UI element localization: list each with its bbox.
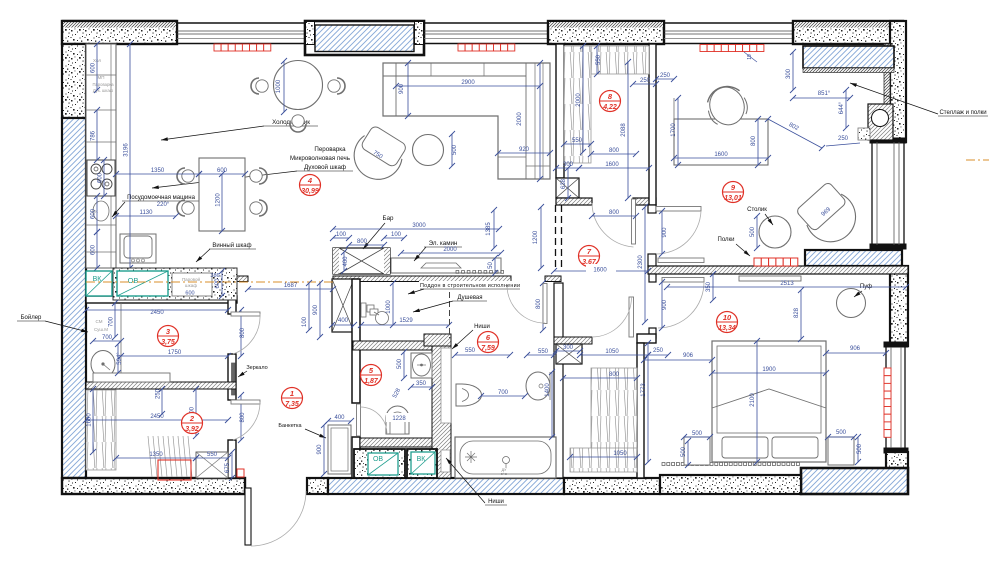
svg-text:1200: 1200: [216, 193, 222, 207]
svg-text:3196: 3196: [124, 143, 130, 157]
svg-text:500: 500: [452, 144, 458, 155]
svg-text:Посудомоечная машина: Посудомоечная машина: [127, 195, 196, 201]
svg-text:1130: 1130: [140, 210, 154, 216]
svg-text:851°: 851°: [818, 91, 831, 97]
svg-text:900: 900: [399, 83, 405, 94]
svg-text:600: 600: [98, 172, 104, 183]
svg-text:250: 250: [660, 73, 671, 79]
svg-text:1600: 1600: [87, 413, 93, 427]
svg-text:600: 600: [91, 62, 97, 73]
svg-text:1400: 1400: [545, 383, 551, 397]
svg-text:Пароварка: Пароварка: [92, 82, 114, 87]
svg-text:500: 500: [750, 226, 756, 237]
svg-text:7,59: 7,59: [481, 345, 495, 352]
svg-text:500: 500: [397, 358, 403, 369]
svg-text:920: 920: [519, 147, 530, 153]
svg-text:1600: 1600: [714, 152, 728, 158]
svg-text:50: 50: [488, 262, 494, 269]
svg-text:350: 350: [416, 381, 427, 387]
svg-text:1050: 1050: [605, 349, 619, 355]
svg-text:1529: 1529: [399, 318, 413, 324]
svg-text:100: 100: [336, 232, 347, 238]
svg-text:1000: 1000: [276, 79, 282, 93]
svg-text:906: 906: [683, 353, 694, 359]
svg-text:1050: 1050: [613, 451, 627, 457]
svg-text:3,92: 3,92: [185, 426, 199, 433]
svg-text:Пероварка: Пероварка: [314, 146, 346, 153]
svg-text:2450: 2450: [150, 414, 164, 420]
svg-text:Суш.М: Суш.М: [94, 327, 108, 332]
svg-text:800: 800: [751, 135, 757, 146]
svg-text:675: 675: [225, 462, 231, 473]
svg-text:1228: 1228: [392, 416, 406, 422]
svg-text:10: 10: [723, 313, 732, 322]
svg-text:1600: 1600: [605, 162, 619, 168]
svg-text:ОВ: ОВ: [128, 276, 139, 285]
svg-text:2300: 2300: [638, 255, 644, 269]
svg-text:1700: 1700: [671, 123, 677, 137]
svg-text:500: 500: [857, 443, 863, 454]
svg-text:800: 800: [240, 327, 246, 338]
svg-text:ОВ: ОВ: [373, 456, 383, 463]
svg-text:786: 786: [91, 130, 97, 141]
svg-text:300: 300: [786, 68, 792, 79]
svg-text:13,34: 13,34: [718, 325, 736, 332]
svg-text:700: 700: [102, 335, 113, 341]
svg-text:Полки: Полки: [718, 237, 735, 243]
svg-text:638: 638: [561, 178, 567, 189]
svg-text:13,01: 13,01: [724, 195, 742, 202]
svg-text:шкаф: шкаф: [185, 283, 197, 288]
svg-text:Паровой: Паровой: [182, 276, 201, 282]
svg-text:2900: 2900: [461, 80, 475, 86]
svg-text:Душевая: Душевая: [457, 295, 482, 301]
svg-text:30,99: 30,99: [301, 188, 319, 195]
svg-text:700: 700: [498, 390, 509, 396]
svg-text:900: 900: [662, 299, 668, 310]
svg-text:900: 900: [662, 227, 668, 238]
svg-text:Зеркало: Зеркало: [246, 365, 267, 371]
svg-text:600: 600: [185, 291, 194, 297]
svg-text:220°: 220°: [157, 202, 170, 208]
svg-text:2000: 2000: [517, 112, 523, 126]
svg-text:400: 400: [334, 415, 345, 421]
svg-text:2450: 2450: [150, 310, 164, 316]
svg-text:4: 4: [307, 176, 313, 185]
svg-text:800: 800: [609, 372, 620, 378]
svg-text:1350: 1350: [149, 452, 163, 458]
svg-text:906: 906: [850, 346, 861, 352]
svg-text:500: 500: [692, 431, 703, 437]
svg-text:1687: 1687: [284, 283, 298, 289]
svg-text:1900: 1900: [762, 367, 776, 373]
svg-text:600: 600: [91, 244, 97, 255]
svg-text:Поддон в строительном исполнен: Поддон в строительном исполнении: [420, 283, 520, 289]
svg-text:800: 800: [609, 148, 620, 154]
svg-text:Микроволновая печь: Микроволновая печь: [290, 155, 350, 162]
svg-text:250: 250: [653, 348, 664, 354]
svg-text:в+ж: в+ж: [501, 472, 508, 476]
svg-text:4,22: 4,22: [602, 104, 617, 111]
svg-text:2100: 2100: [750, 393, 756, 407]
svg-text:800: 800: [609, 210, 620, 216]
svg-text:Ниши: Ниши: [474, 324, 490, 330]
svg-text:800: 800: [240, 412, 246, 423]
svg-text:300: 300: [563, 345, 574, 351]
svg-text:500: 500: [836, 430, 847, 436]
svg-text:800: 800: [357, 239, 368, 245]
svg-text:Эл. камин: Эл. камин: [429, 240, 458, 247]
svg-text:Бойлер: Бойлер: [21, 314, 42, 321]
svg-text:Банкетка: Банкетка: [278, 423, 302, 429]
svg-text:1385: 1385: [486, 222, 492, 236]
svg-text:828: 828: [794, 307, 800, 318]
svg-text:1000: 1000: [386, 300, 392, 314]
svg-text:550: 550: [465, 348, 476, 354]
svg-text:ВК: ВК: [417, 456, 427, 463]
svg-text:400: 400: [338, 318, 349, 324]
svg-text:800: 800: [536, 298, 542, 309]
svg-text:1750: 1750: [168, 350, 182, 356]
svg-text:900: 900: [313, 304, 319, 315]
svg-text:Стеллаж и полки: Стеллаж и полки: [939, 110, 986, 116]
svg-text:Винный шкаф: Винный шкаф: [212, 242, 251, 249]
svg-text:1600: 1600: [593, 268, 607, 274]
svg-text:644°: 644°: [839, 101, 845, 114]
svg-text:100: 100: [391, 232, 402, 238]
svg-text:550: 550: [596, 54, 602, 65]
svg-text:2: 2: [189, 414, 195, 423]
svg-text:250: 250: [640, 78, 651, 84]
svg-text:Бар: Бар: [383, 215, 395, 222]
svg-text:2000: 2000: [576, 93, 582, 107]
svg-text:1773: 1773: [641, 383, 647, 397]
svg-text:700: 700: [109, 316, 115, 327]
svg-text:550: 550: [572, 138, 583, 144]
svg-text:2088: 2088: [621, 123, 627, 137]
svg-text:100: 100: [302, 316, 308, 327]
svg-text:МП: МП: [98, 75, 105, 80]
svg-text:250: 250: [838, 136, 849, 142]
svg-text:3,75: 3,75: [161, 339, 175, 346]
svg-text:900: 900: [317, 444, 323, 455]
svg-text:550: 550: [538, 349, 549, 355]
svg-text:Духовой шкаф: Духовой шкаф: [304, 164, 346, 171]
svg-text:350: 350: [706, 281, 712, 292]
svg-text:1200: 1200: [533, 230, 539, 244]
svg-text:400: 400: [343, 256, 349, 267]
svg-text:1350: 1350: [151, 168, 165, 174]
svg-text:1: 1: [290, 389, 294, 398]
svg-text:250: 250: [156, 388, 162, 399]
svg-text:СМ: СМ: [96, 319, 103, 324]
svg-text:1,87: 1,87: [364, 378, 379, 385]
svg-text:3000: 3000: [412, 223, 426, 229]
svg-text:386: 386: [210, 273, 219, 279]
svg-text:2513: 2513: [780, 281, 794, 287]
svg-text:Столик: Столик: [747, 207, 767, 213]
svg-text:600: 600: [91, 208, 97, 219]
svg-text:7,35: 7,35: [285, 401, 299, 408]
svg-text:500: 500: [681, 446, 687, 457]
svg-text:2000: 2000: [443, 247, 457, 253]
svg-text:550: 550: [207, 452, 218, 458]
svg-text:600: 600: [215, 278, 221, 289]
svg-text:594°: 594°: [117, 352, 123, 365]
svg-text:Ниши: Ниши: [488, 499, 504, 505]
